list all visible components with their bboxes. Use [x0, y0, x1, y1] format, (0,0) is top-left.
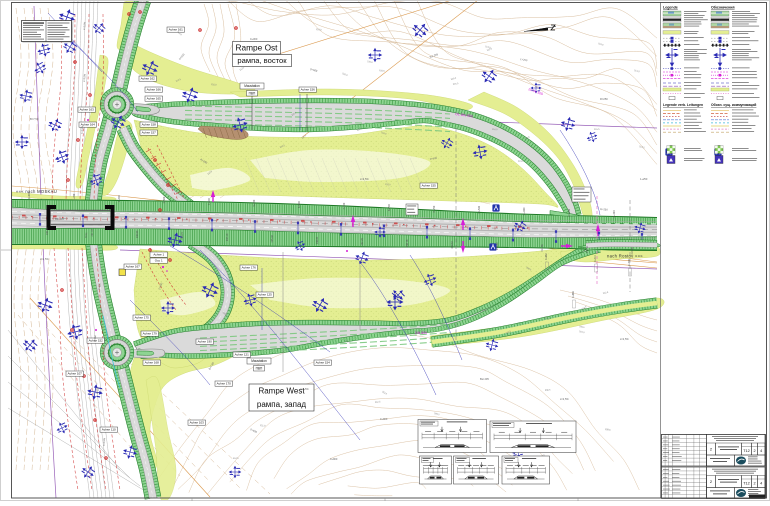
svg-text:0+900: 0+900 [330, 457, 338, 461]
svg-text:Обозначения: Обозначения [711, 6, 735, 10]
svg-text:2: 2 [753, 482, 755, 486]
svg-text:216.0: 216.0 [492, 129, 498, 131]
svg-text:Achse 162: Achse 162 [141, 77, 156, 81]
svg-text:11+800: 11+800 [523, 207, 526, 216]
svg-text:9+700: 9+700 [433, 205, 436, 212]
svg-text:T12: T12 [743, 482, 750, 486]
svg-text:ПВП: ПВП [249, 91, 256, 95]
svg-text:Bst 205: Bst 205 [480, 377, 489, 381]
svg-text:10+500: 10+500 [478, 205, 481, 214]
svg-text:R=250: R=250 [600, 97, 608, 101]
svg-text:1+200: 1+200 [73, 193, 76, 200]
svg-text:208.78: 208.78 [406, 239, 409, 247]
svg-text:Achse 110: Achse 110 [102, 428, 116, 432]
svg-text:Legende verb. Leitungen: Legende verb. Leitungen [663, 103, 703, 107]
svg-text:Achse 125: Achse 125 [258, 293, 273, 297]
svg-text:Achse 155: Achse 155 [422, 184, 437, 188]
svg-text:Achse 190: Achse 190 [198, 340, 213, 344]
svg-text:Ось 1: Ось 1 [155, 259, 163, 263]
svg-text:s=2,5%: s=2,5% [300, 387, 309, 391]
svg-text:««« nach MOSKAU: ««« nach MOSKAU [16, 189, 57, 194]
svg-text:209.54: 209.54 [451, 241, 454, 249]
svg-text:Achse 166: Achse 166 [147, 88, 162, 92]
svg-text:200.75: 200.75 [46, 227, 49, 235]
svg-text:203.74: 203.74 [181, 232, 184, 240]
svg-text:B=7,50: B=7,50 [30, 117, 39, 121]
svg-text:212.5: 212.5 [233, 458, 239, 460]
svg-text:Обозн. сущ. коммуникаций: Обозн. сущ. коммуникаций [711, 103, 756, 107]
svg-text:s=2,5%: s=2,5% [620, 337, 629, 341]
svg-text:0+150: 0+150 [98, 282, 102, 290]
svg-text:2: 2 [753, 449, 755, 453]
svg-text:Achse 157: Achse 157 [142, 131, 157, 135]
svg-text:1+250: 1+250 [640, 177, 648, 181]
svg-text:216.0: 216.0 [385, 184, 391, 186]
svg-text:213.99: 213.99 [631, 247, 634, 255]
svg-text:Achse 103: Achse 103 [190, 421, 205, 425]
svg-text:ПВП: ПВП [256, 366, 263, 370]
svg-text:s=2,5%: s=2,5% [40, 257, 49, 261]
svg-text:DN 800: DN 800 [415, 331, 427, 335]
svg-text:Achse 170: Achse 170 [217, 382, 232, 386]
svg-text:Achse 158: Achse 158 [142, 123, 157, 127]
svg-text:6+900: 6+900 [298, 201, 301, 208]
svg-text:0+150: 0+150 [96, 386, 100, 394]
svg-text:Achse 156: Achse 156 [301, 88, 316, 92]
svg-text:Achse 161: Achse 161 [169, 28, 184, 32]
svg-text:215.5: 215.5 [594, 129, 600, 131]
svg-text:рампа, запад: рампа, запад [257, 400, 307, 409]
svg-text:0+682: 0+682 [545, 253, 548, 260]
svg-text:0+866: 0+866 [572, 291, 575, 298]
svg-text:Achse 154: Achse 154 [316, 361, 331, 365]
svg-text:2+400: 2+400 [118, 195, 121, 202]
svg-text:Achse 107: Achse 107 [68, 372, 83, 376]
svg-text:211.58: 211.58 [541, 244, 544, 252]
svg-text:0+300: 0+300 [250, 37, 258, 41]
svg-text:202.63: 202.63 [136, 230, 139, 238]
svg-text:R=250: R=250 [600, 207, 609, 212]
svg-text:nach Rostov »»»: nach Rostov »»» [607, 254, 643, 259]
svg-text:205.48: 205.48 [271, 235, 274, 243]
svg-text:Achse 167: Achse 167 [126, 265, 141, 269]
svg-text:Achse 168: Achse 168 [145, 361, 160, 365]
svg-text:Rampe Ost: Rampe Ost [236, 43, 279, 53]
svg-text:Legende: Legende [663, 6, 678, 10]
svg-text:0+709: 0+709 [628, 259, 631, 266]
svg-text:4+400: 4+400 [208, 198, 211, 205]
svg-text:4: 4 [760, 449, 762, 453]
svg-text:Achse 176: Achse 176 [242, 266, 257, 270]
svg-text:Achse 1: Achse 1 [153, 253, 164, 257]
svg-text:0+900: 0+900 [380, 417, 388, 421]
svg-text:201.18: 201.18 [91, 229, 94, 237]
svg-text:204.10: 204.10 [226, 233, 229, 241]
svg-text:207.29: 207.29 [361, 238, 364, 246]
svg-text:B=11: B=11 [85, 232, 89, 238]
svg-text:Rampe West: Rampe West [258, 387, 305, 396]
svg-text:Achse 175: Achse 175 [135, 316, 150, 320]
svg-text:Achse 179: Achse 179 [143, 332, 158, 336]
svg-text:T12: T12 [743, 449, 750, 453]
svg-text:s=2,5%: s=2,5% [560, 397, 569, 401]
svg-text:s=2,5%: s=2,5% [360, 177, 369, 181]
svg-text:Achse 165: Achse 165 [147, 97, 162, 101]
svg-text:13+300: 13+300 [613, 210, 616, 219]
svg-text:Bst 205: Bst 205 [55, 217, 64, 221]
svg-text:8+700: 8+700 [388, 204, 391, 211]
svg-text:206.84: 206.84 [316, 236, 319, 244]
svg-text:Maustation: Maustation [244, 84, 260, 88]
svg-text:Maustation: Maustation [251, 359, 267, 363]
svg-text:7+700: 7+700 [343, 202, 346, 209]
svg-text:4: 4 [760, 482, 762, 486]
svg-text:210.80: 210.80 [496, 242, 499, 250]
svg-text:12+700: 12+700 [568, 208, 571, 217]
svg-text:3+500: 3+500 [163, 196, 166, 203]
svg-text:рампа, восток: рампа, восток [237, 56, 287, 65]
svg-text:5+400: 5+400 [253, 199, 256, 206]
svg-text:0+900: 0+900 [28, 192, 31, 199]
svg-text:1+050: 1+050 [94, 334, 98, 342]
svg-text:0+414: 0+414 [594, 255, 597, 262]
svg-text:212.51: 212.51 [586, 245, 589, 253]
svg-text:Achse 163: Achse 163 [80, 108, 95, 112]
svg-text:Achse 121: Achse 121 [235, 353, 250, 357]
